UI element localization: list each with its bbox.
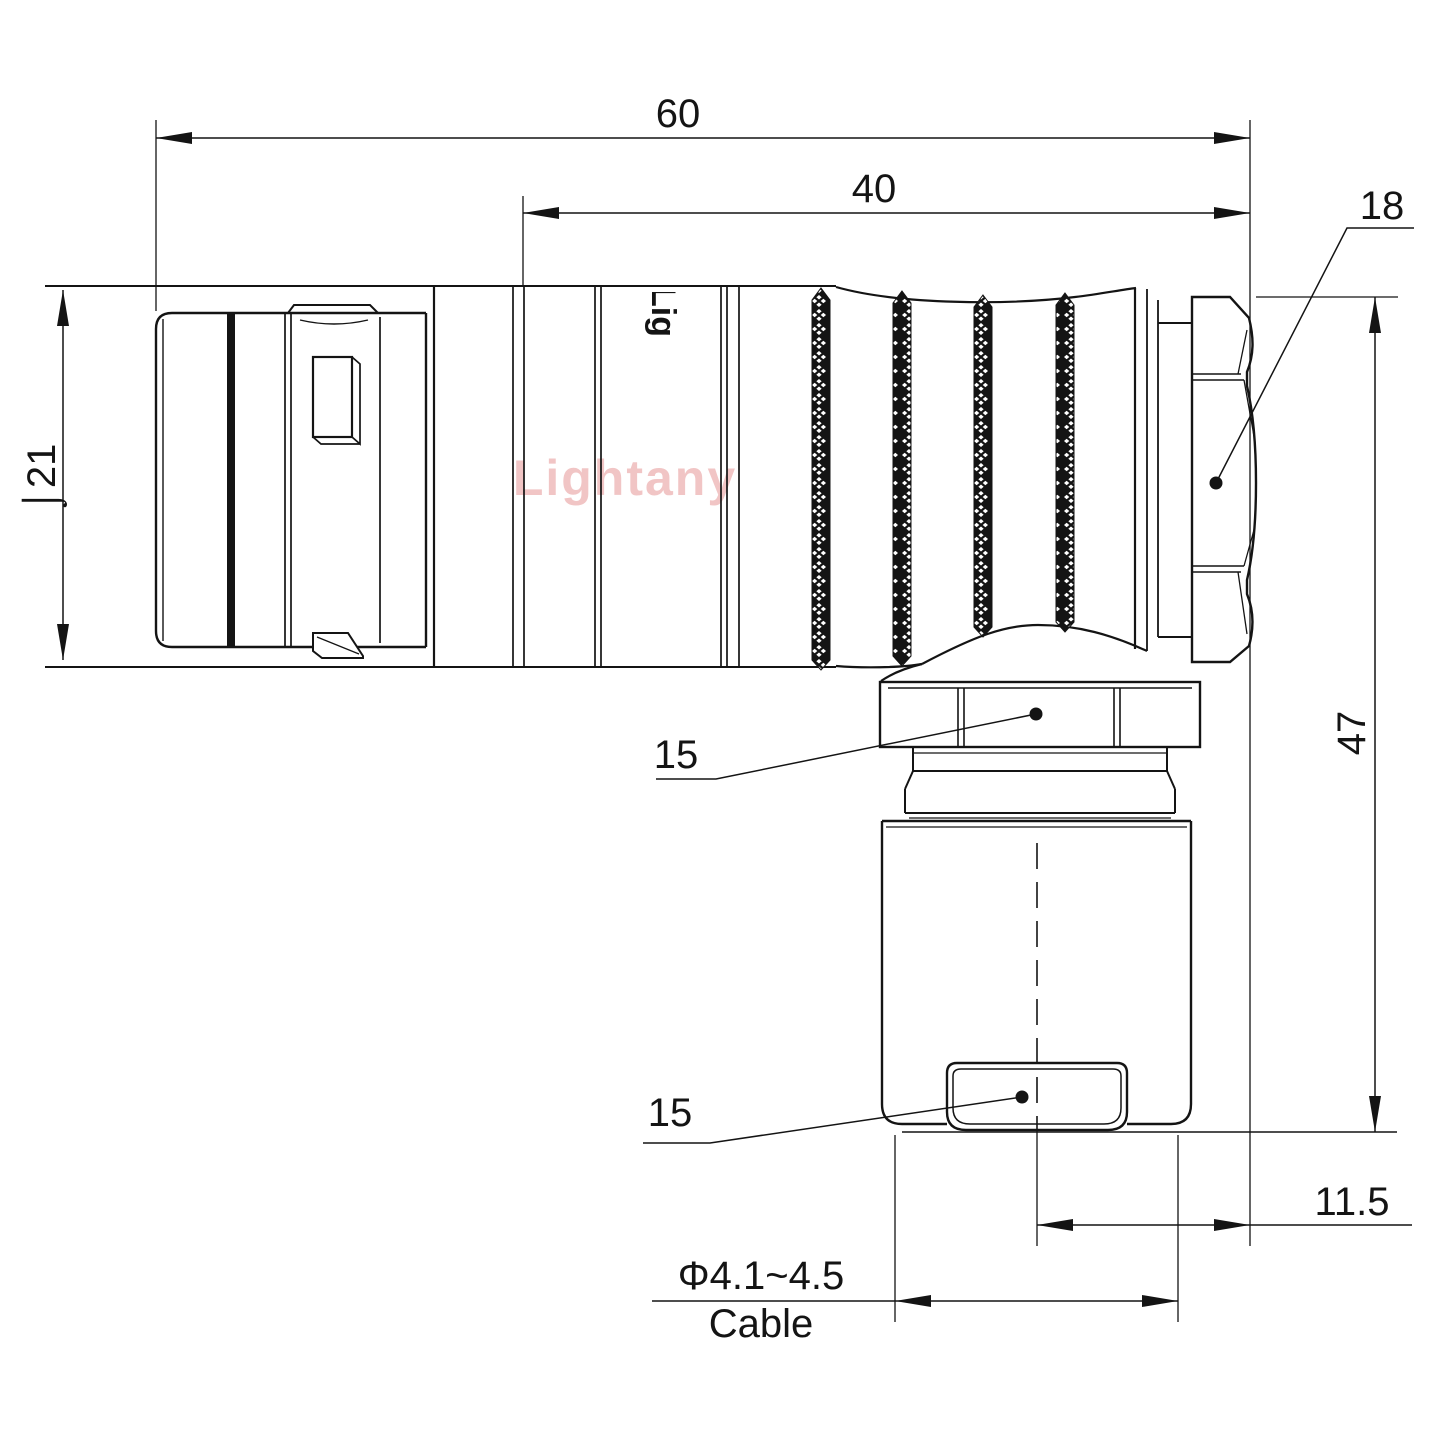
dim-label-rear-length: 40 [852,169,897,209]
technical-drawing-page: Lightany [0,0,1440,1440]
dim-label-backnut-width: 18 [1360,186,1405,226]
connector-technical-drawing [0,0,1440,1440]
dim-label-overall-height: 47 [1332,711,1372,756]
front-shell [156,305,426,658]
dim-label-cable-word: Cable [709,1304,814,1344]
dim-label-cable-diameter-range: Φ4.1~4.5 [678,1256,844,1296]
dim-label-cable-axis-offset: 11.5 [1315,1182,1390,1222]
dim-label-clamp-size: 15 [648,1093,693,1133]
keyway-window [313,357,360,444]
dim-label-overall-length: 60 [656,94,701,134]
body-logo: Lig [643,292,682,337]
body-logo-clip: Lig [640,292,692,340]
dim-label-elbow-nut-size: 15 [654,735,699,775]
elbow-saddle-curve [922,625,1147,664]
back-hex-nut [1192,297,1256,662]
elbow-stack [880,682,1200,1131]
boot [836,287,1192,681]
knurl-strips [812,288,1074,670]
bottom-key [313,633,363,658]
dim-label-front-diameter: ⌡21 [22,444,62,513]
shell-dark-band [227,313,235,647]
